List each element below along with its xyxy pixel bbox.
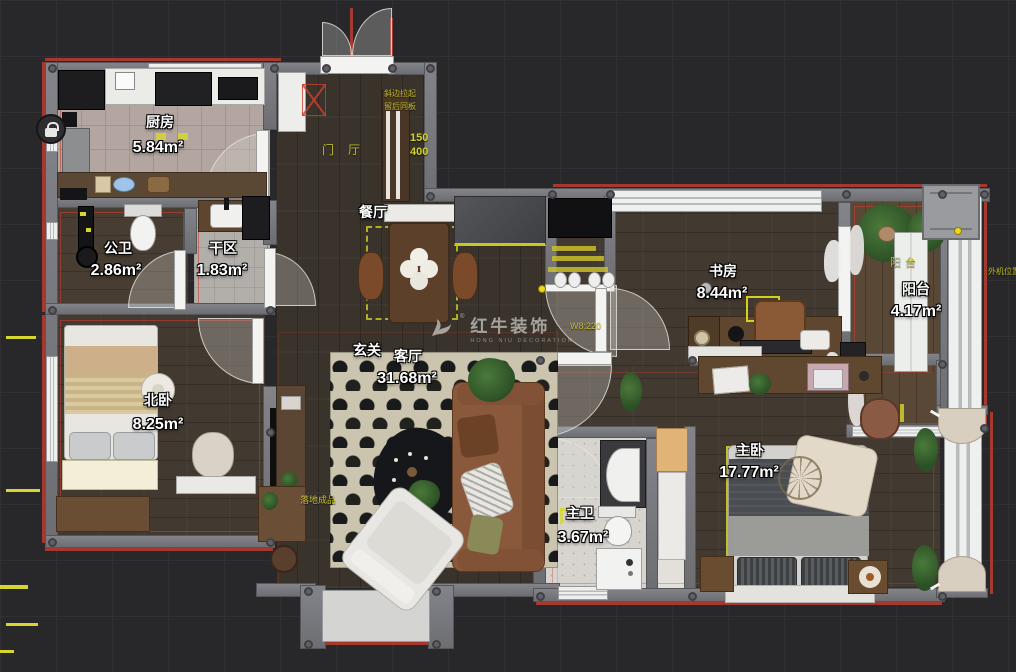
red-dim-line [990, 412, 993, 594]
floor-text-foyer: 门厅 [322, 141, 374, 158]
wall-joint [938, 360, 947, 369]
dry-area-door-leaf[interactable] [264, 248, 276, 308]
shower-accent [86, 228, 91, 232]
room-label-kitchen: 厨房 [146, 112, 174, 132]
lock-body [45, 128, 57, 137]
shoes [554, 272, 567, 288]
rattan-decor [778, 456, 822, 500]
dimension-tick [6, 623, 38, 626]
dining-cabinet[interactable] [454, 196, 546, 246]
entry-annotation-2: 留后同板 [384, 101, 416, 112]
shoes [602, 272, 615, 288]
wall-joint [548, 190, 557, 199]
annotation-mark [900, 404, 904, 422]
room-area-study: 8.44m² [697, 285, 748, 303]
speaker-cone [866, 573, 874, 581]
chandelier-bulb [394, 458, 398, 462]
room-label-living: 客厅 [394, 346, 422, 366]
counter-sink-bowl[interactable] [113, 177, 135, 192]
room-label-dry-area: 干区 [209, 238, 237, 258]
entry-door-arc-right[interactable] [352, 8, 392, 56]
wall-joint [322, 64, 331, 73]
room-label-entry-hall: 玄关 [353, 340, 381, 360]
table-decor [410, 272, 428, 290]
chandelier-bulb [408, 452, 412, 456]
wall-joint [688, 356, 697, 365]
lock-icon[interactable] [36, 114, 66, 144]
curtain [938, 556, 986, 592]
annotation-mark [560, 508, 563, 524]
chandelier-bulb [392, 478, 396, 482]
wall-joint [266, 306, 275, 315]
wall-joint [426, 64, 435, 73]
wall-joint [304, 587, 313, 596]
wall-joint [266, 428, 275, 437]
speaker [859, 566, 881, 588]
ac-outdoor-unit[interactable] [922, 184, 980, 240]
dim-text-150: 150 [410, 132, 428, 144]
closet-cabinet-top[interactable] [656, 428, 688, 472]
storage-cabinet[interactable] [548, 198, 612, 238]
wall [45, 535, 275, 548]
room-label-public-bath: 公卫 [104, 238, 132, 258]
north-bedroom-chair[interactable] [192, 432, 234, 478]
range-hood[interactable] [155, 72, 212, 106]
watermark-subtitle: HONG NIU DECORATION [470, 338, 573, 344]
counter-basket[interactable] [147, 176, 170, 193]
wall-joint [270, 64, 279, 73]
sofa-backrest [522, 391, 544, 565]
wall-joint [688, 592, 697, 601]
room-label-master-bath: 主卫 [566, 503, 594, 523]
wall-joint [980, 190, 989, 199]
watermark-text: 红牛装饰 HONG NIU DECORATION [470, 312, 573, 344]
north-bed-headboard[interactable] [62, 460, 158, 490]
wall [184, 208, 197, 254]
entry-door-arc-left[interactable] [322, 22, 352, 56]
room-label-balcony: 阳台 [902, 279, 930, 299]
wall-joint [266, 538, 275, 547]
entry-door-sill[interactable] [320, 56, 394, 74]
room-area-master-bedroom: 17.77m² [719, 464, 779, 482]
wall-plant-decor [824, 240, 842, 282]
kitchen-sink[interactable] [115, 72, 135, 90]
sofa-pillow-olive [466, 514, 504, 556]
red-dim-line [45, 58, 281, 61]
room-area-north-bedroom: 8.25m² [133, 416, 184, 434]
washer-dial [626, 559, 633, 566]
closet-cabinet[interactable] [658, 472, 686, 560]
shoes [588, 272, 601, 288]
wall-joint [426, 192, 435, 201]
wall-joint [536, 356, 545, 365]
room-label-study: 书房 [709, 261, 737, 281]
ac-vent-line [930, 192, 972, 194]
annotation-text-row [548, 267, 608, 272]
room-area-dry-area: 1.83m² [197, 262, 248, 280]
nightstand-right[interactable] [848, 560, 888, 594]
bed-pillow [113, 432, 155, 460]
room-label-dining: 餐厅 [359, 202, 387, 222]
shoe-cabinet-slats [386, 111, 406, 199]
wall-plant-decor [848, 225, 864, 275]
sofa-cushion [456, 414, 499, 459]
handle-dot[interactable] [538, 285, 546, 293]
balcony-cabinet[interactable] [894, 232, 928, 372]
toilet-bowl[interactable] [130, 215, 156, 251]
dimension-tick [0, 650, 14, 653]
wall-joint [48, 306, 57, 315]
dimension-tick [6, 336, 36, 339]
curtain [938, 408, 986, 444]
wall-joint [842, 190, 851, 199]
handle-dot[interactable] [954, 227, 962, 235]
hongniu-logo-icon [428, 315, 454, 341]
wall [428, 585, 454, 649]
wall-niche [46, 222, 58, 240]
ac-vent-line [930, 228, 972, 230]
floor-text-balcony: 阳台 [890, 254, 920, 270]
north-bedroom-window[interactable] [46, 356, 58, 462]
wall-joint [388, 64, 397, 73]
desk-item [859, 371, 869, 381]
wall-joint [432, 587, 441, 596]
wall-joint [606, 190, 615, 199]
wall-joint [304, 640, 313, 649]
desk-items [800, 330, 830, 350]
registered-mark: ® [460, 314, 464, 320]
dimension-tick [0, 585, 28, 589]
wall-code-text: W8:220 [570, 321, 601, 331]
room-label-master-bedroom: 主卧 [736, 440, 764, 460]
wall-joint [536, 592, 545, 601]
annotation-text-row [552, 256, 604, 261]
console-frame [281, 396, 301, 410]
wall-joint [980, 424, 989, 433]
room-label-north-bedroom: 北卧 [144, 390, 172, 410]
chandelier-center [407, 467, 417, 477]
north-bedroom-desk[interactable] [176, 476, 256, 494]
kitchen-appliance[interactable] [218, 77, 258, 100]
bed-blanket-gray [729, 516, 869, 556]
public-bath-door-leaf[interactable] [174, 250, 186, 310]
wall-joint [938, 592, 947, 601]
room-area-balcony: 4.17m² [891, 303, 942, 321]
master-chair[interactable] [860, 398, 900, 440]
red-dim-line [45, 548, 273, 551]
shoes [568, 272, 581, 288]
laptop [813, 369, 843, 389]
north-bedroom-door-leaf[interactable] [252, 318, 264, 384]
room-area-kitchen: 5.84m² [133, 139, 184, 157]
vanity-faucet [224, 198, 229, 210]
dining-chair-right[interactable] [452, 252, 478, 300]
sofa[interactable] [452, 382, 545, 572]
study-window[interactable] [610, 190, 822, 212]
desk-plant [749, 373, 771, 395]
floorplan-canvas: 门厅 阳台 落地成品 150 400 斜边拉起 留后同板 W8:220 外机位置… [0, 0, 1016, 672]
nightstand-left[interactable] [700, 556, 734, 592]
bath-basin[interactable] [606, 448, 640, 502]
master-desk[interactable] [698, 356, 882, 394]
wall-joint [938, 190, 947, 199]
north-bedroom-dresser[interactable] [56, 496, 150, 532]
floor-text-item-note: 落地成品 [300, 493, 336, 506]
sofa-pillow-white [458, 460, 515, 523]
desk-clock [694, 330, 710, 346]
counter-item-black[interactable] [60, 188, 87, 200]
fridge[interactable] [58, 70, 105, 110]
kitchen-tall-unit[interactable] [62, 128, 90, 173]
dim-text-400: 400 [410, 146, 428, 158]
wall-joint [48, 64, 57, 73]
entry-annotation-1: 斜边拉起 [384, 88, 416, 99]
stool[interactable] [270, 545, 298, 573]
study-door-leaf[interactable] [595, 288, 607, 352]
bed-pillow [69, 432, 111, 460]
dimension-tick [6, 489, 40, 492]
washer-dial [628, 571, 633, 576]
counter-item[interactable] [95, 176, 111, 193]
watermark: ® 红牛装饰 HONG NIU DECORATION [428, 312, 574, 344]
red-dim-line [984, 198, 987, 430]
chandelier-bulb [424, 456, 428, 460]
dining-chair-left[interactable] [358, 252, 384, 300]
watermark-brand: 红牛装饰 [470, 312, 573, 337]
mirror-cabinet[interactable] [242, 196, 270, 240]
ac-annotation: 外机位置 [988, 266, 1016, 277]
shoe-zone-marker [302, 84, 326, 116]
wall-joint [48, 538, 57, 547]
room-area-master-bath: 3.67m² [558, 529, 609, 547]
washing-machine[interactable] [596, 548, 642, 590]
room-area-public-bath: 2.86m² [91, 262, 142, 280]
wall-joint [432, 640, 441, 649]
desk-pad [712, 365, 750, 394]
shower-accent [80, 212, 86, 216]
room-area-living: 31.68m² [377, 370, 437, 388]
sofa-armrest [457, 549, 543, 571]
annotation-text-row [552, 246, 596, 251]
